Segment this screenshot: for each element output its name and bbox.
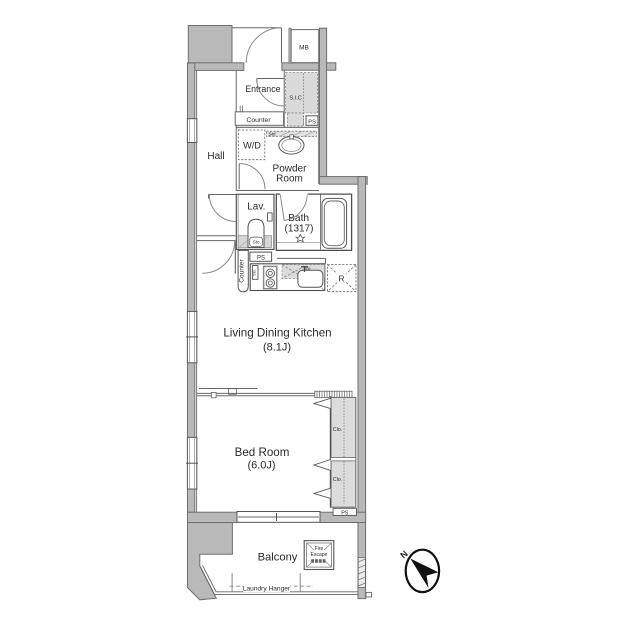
svg-text:(1317): (1317) — [285, 224, 314, 235]
svg-text:Clo.: Clo. — [333, 427, 343, 433]
svg-text:Sto.: Sto. — [269, 132, 277, 137]
svg-text:Hall: Hall — [207, 151, 224, 162]
svg-text:W/D: W/D — [243, 141, 261, 151]
svg-text:(6.0J): (6.0J) — [247, 460, 275, 472]
svg-text:Clo.: Clo. — [333, 477, 343, 483]
svg-text:Living Dining Kitchen: Living Dining Kitchen — [223, 326, 331, 339]
svg-text:Room: Room — [276, 174, 303, 185]
svg-text:(8.1J): (8.1J) — [263, 341, 291, 353]
svg-text:PS: PS — [308, 119, 316, 125]
svg-text:R: R — [339, 275, 345, 284]
svg-text:Counter: Counter — [239, 258, 246, 282]
svg-text:S.I.C: S.I.C — [289, 96, 301, 102]
svg-text:PS: PS — [257, 255, 265, 261]
svg-text:Fire: Fire — [315, 546, 324, 552]
svg-text:Balcony: Balcony — [258, 552, 298, 564]
svg-text:MB: MB — [299, 45, 309, 52]
svg-text:Escape: Escape — [311, 552, 328, 558]
svg-text:Sto.: Sto. — [251, 269, 256, 276]
svg-text:PS: PS — [341, 510, 349, 516]
svg-text:Entrance: Entrance — [245, 84, 280, 94]
svg-text:Lav.: Lav. — [247, 202, 265, 213]
svg-text:Laundry Hanger: Laundry Hanger — [243, 586, 291, 593]
svg-text:Bed Room: Bed Room — [235, 446, 290, 459]
svg-text:Counter: Counter — [246, 117, 271, 124]
svg-text:Sto.: Sto. — [253, 240, 261, 245]
